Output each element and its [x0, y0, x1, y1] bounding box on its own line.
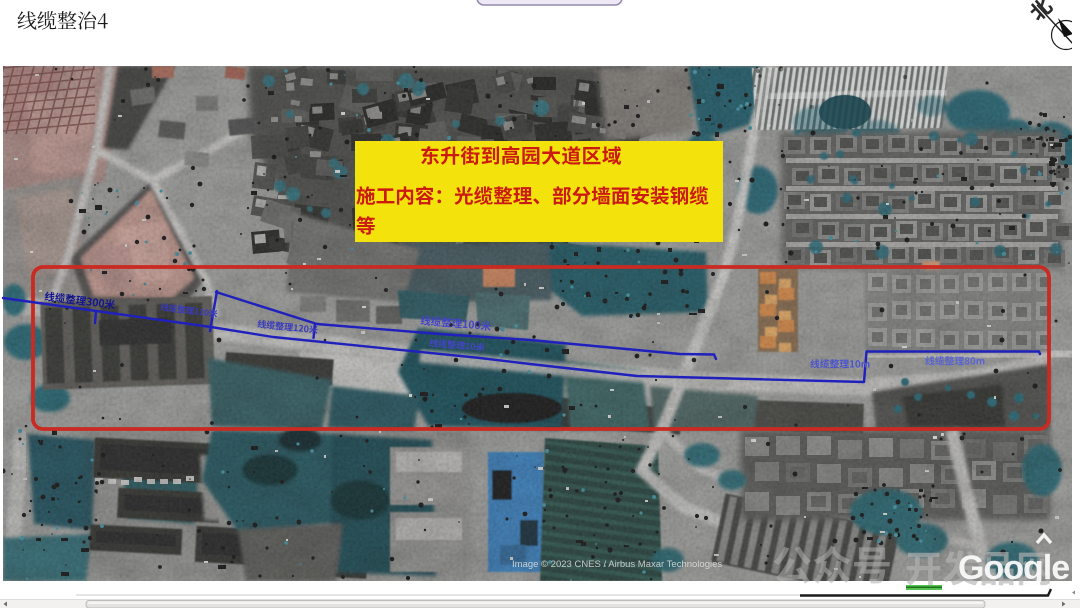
- svg-text:Image © 2023 CNES / Airbus Max: Image © 2023 CNES / Airbus Maxar Technol…: [512, 559, 722, 570]
- svg-text:Google: Google: [958, 549, 1069, 587]
